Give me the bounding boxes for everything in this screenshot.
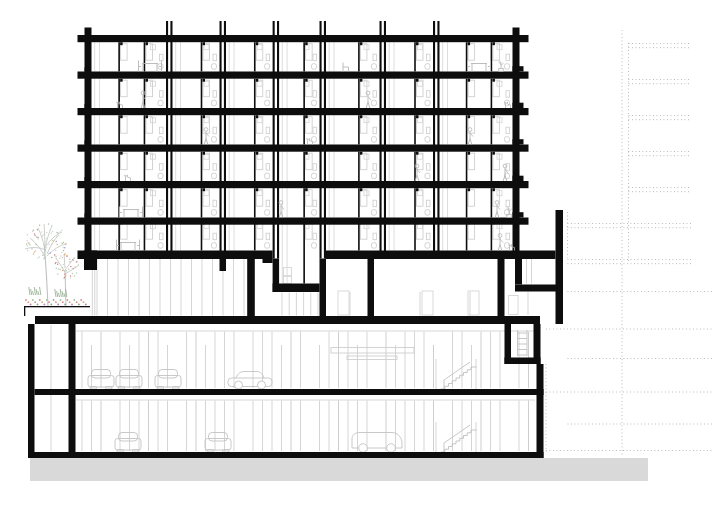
parking-cars [88, 370, 402, 453]
drawing-canvas: Architectural building cross-section dra… [0, 0, 715, 506]
terrace-trees [25, 223, 87, 306]
building-section-drawing [0, 0, 715, 506]
parking-stairs [436, 359, 477, 452]
neighbor-building-dashed-outline [546, 30, 712, 456]
section-cut-ink [24, 21, 563, 458]
ground-strip [30, 458, 648, 481]
